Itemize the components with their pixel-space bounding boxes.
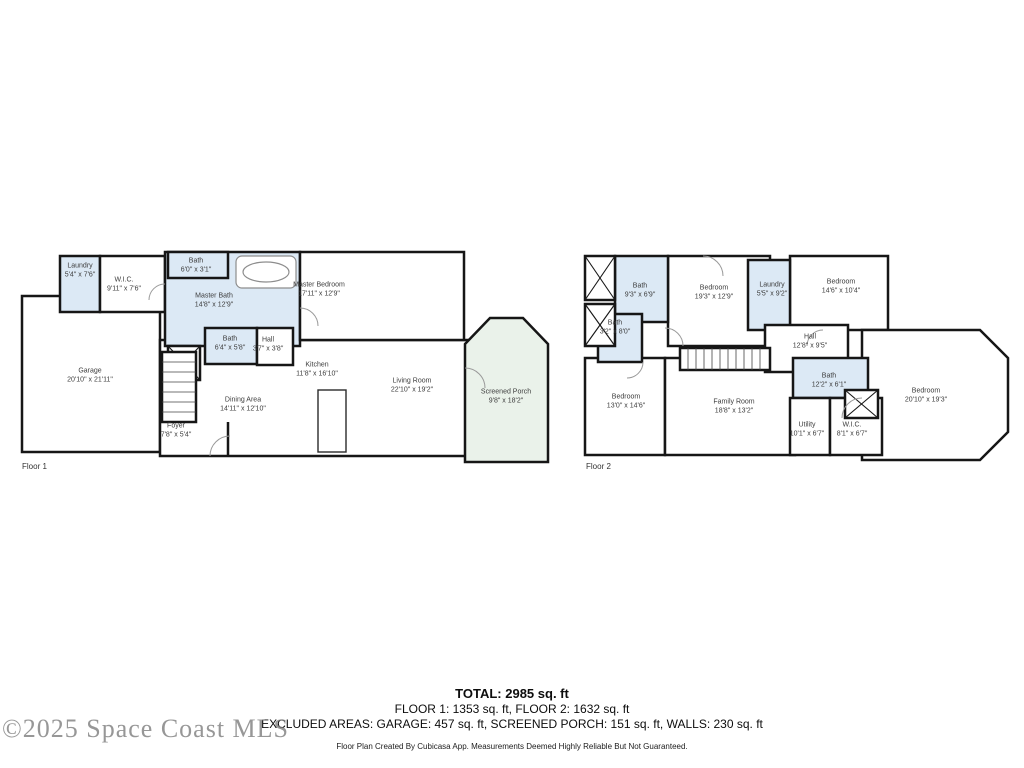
kitchen-island: [318, 390, 346, 452]
room-label-hall: Hall3'7" x 3'8": [253, 336, 284, 354]
room-label-bedroom-14x10: Bedroom14'6" x 10'4": [822, 278, 860, 296]
floor2-tag: Floor 2: [586, 462, 611, 471]
room-label-bedroom-19x12: Bedroom19'3" x 12'9": [695, 284, 733, 302]
floor-plan-page: { "watermark": "©2025 Space Coast MLS", …: [0, 0, 1024, 768]
stairs-floor2: [680, 348, 770, 370]
room-label-master-bath: Master Bath14'8" x 12'9": [195, 292, 233, 310]
room-label-wic2: W.I.C.8'1" x 6'7": [837, 421, 868, 439]
total-area-text: TOTAL: 2985 sq. ft: [152, 686, 872, 701]
floor-plan-canvas: Laundry5'4" x 7'6" W.I.C.9'11" x 7'6" Ba…: [0, 0, 1024, 768]
room-label-hall-bath: Bath6'4" x 5'8": [215, 335, 246, 353]
room-label-bath-12x6: Bath12'2" x 6'1": [812, 372, 847, 390]
room-label-laundry: Laundry5'4" x 7'6": [65, 262, 96, 280]
floor1-tag: Floor 1: [22, 462, 47, 471]
stairs-floor1: [162, 352, 196, 422]
room-label-laundry2: Laundry5'5" x 9'2": [757, 281, 788, 299]
room-label-utility: Utility10'1" x 6'7": [790, 421, 825, 439]
room-label-dining-area: Dining Area14'11" x 12'10": [220, 396, 266, 414]
bathtub-basin: [243, 262, 289, 282]
room-label-bedroom-13x14: Bedroom13'0" x 14'6": [607, 393, 645, 411]
room-label-garage: Garage20'10" x 21'11": [67, 367, 113, 385]
room-label-screened-porch: Screened Porch9'8" x 18'2": [481, 388, 531, 406]
room-label-bath-9x6: Bath9'3" x 6'9": [625, 282, 656, 300]
mls-watermark: ©2025 Space Coast MLS: [2, 714, 289, 744]
room-label-foyer: Foyer7'8" x 5'4": [161, 422, 192, 440]
room-label-bedroom-20x19: Bedroom20'10" x 19'3": [905, 387, 947, 405]
room-label-master-bedroom: Master Bedroom17'11" x 12'9": [293, 281, 345, 299]
room-label-wic: W.I.C.9'11" x 7'6": [107, 276, 141, 294]
floor1-plan-drawing: [18, 248, 563, 476]
room-label-kitchen: Kitchen11'8" x 16'10": [296, 361, 338, 379]
room-label-living-room: Living Room22'10" x 19'2": [391, 377, 433, 395]
room-label-hall2: Hall12'8" x 9'5": [793, 333, 828, 351]
room-label-bath-3x8: Bath3'2" x 8'0": [600, 319, 631, 337]
room-label-family-room: Family Room18'8" x 13'2": [713, 398, 754, 416]
room-label-bath-small: Bath6'0" x 3'1": [181, 257, 212, 275]
